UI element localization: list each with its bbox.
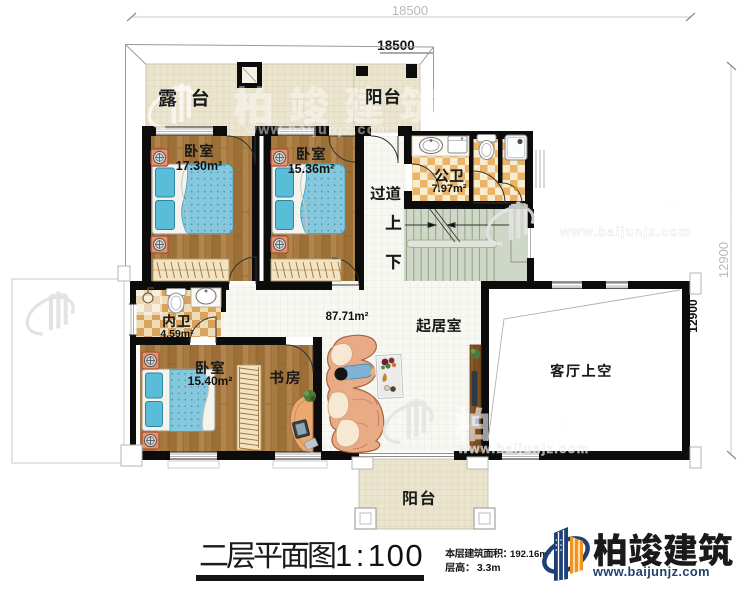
svg-text:1:100: 1:100 [335,538,424,573]
svg-text:15.40m²: 15.40m² [188,374,233,388]
svg-text:12900: 12900 [716,242,731,278]
svg-text:87.71m²: 87.71m² [326,311,369,323]
svg-text:18500: 18500 [377,38,415,53]
svg-text:17.30m²: 17.30m² [176,159,223,173]
svg-text:4.59m²: 4.59m² [160,328,194,340]
svg-text:7.97m²: 7.97m² [432,183,467,195]
svg-text:www.baijunjz.com: www.baijunjz.com [457,441,589,456]
svg-text:www.baijunjz.com: www.baijunjz.com [559,224,691,239]
svg-text:18500: 18500 [392,3,428,18]
svg-text:3.3m: 3.3m [477,563,500,574]
svg-text:15.36m²: 15.36m² [288,162,335,176]
svg-text:www.baijunjz.com: www.baijunjz.com [592,564,710,579]
svg-text:www.baijunjz.com: www.baijunjz.com [245,121,391,137]
